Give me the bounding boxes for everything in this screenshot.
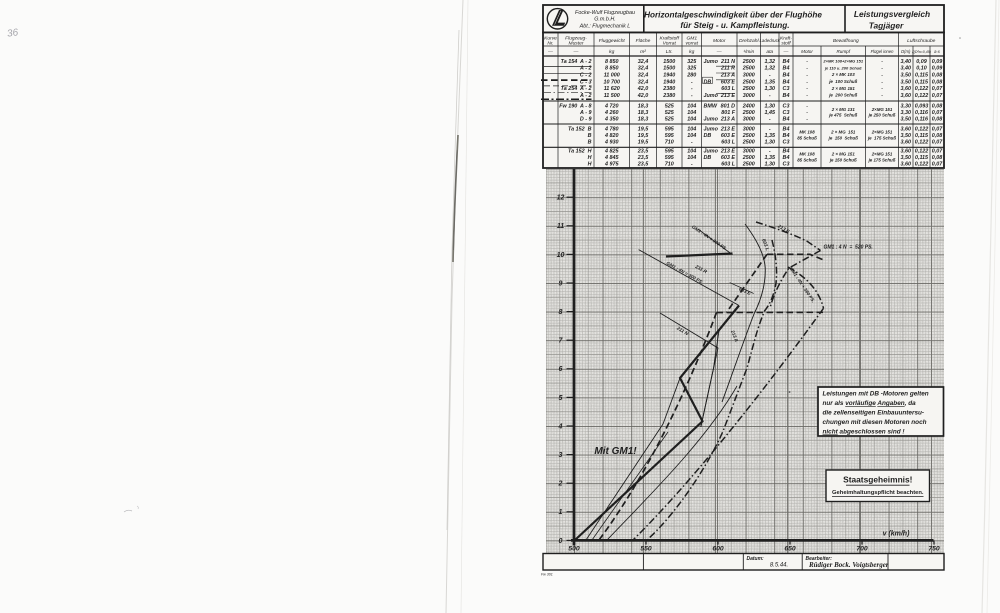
svg-text:3000: 3000 (743, 73, 755, 79)
svg-text:Kraftstoff: Kraftstoff (659, 36, 679, 42)
svg-text:1,35: 1,35 (765, 155, 776, 161)
svg-text:603 L: 603 L (721, 161, 735, 167)
svg-text:C3: C3 (783, 161, 790, 167)
svg-text:0,08: 0,08 (932, 79, 943, 85)
svg-text:-: - (881, 93, 883, 99)
svg-text:B4: B4 (783, 79, 790, 85)
svg-text:2500: 2500 (742, 133, 755, 139)
svg-text:die zellenseitigen Einbauunter: die zellenseitigen Einbauuntersu- (823, 410, 925, 417)
svg-text:je 110 u. 200 Schuß: je 110 u. 200 Schuß (824, 65, 862, 70)
svg-text:0,07: 0,07 (932, 148, 943, 154)
svg-text:32,4: 32,4 (638, 66, 649, 72)
svg-text:18,3: 18,3 (638, 103, 649, 109)
svg-text:2500: 2500 (742, 59, 755, 65)
svg-text:B: B (588, 139, 592, 145)
svg-text:85 Schuß: 85 Schuß (797, 135, 817, 140)
svg-text:0,08: 0,08 (932, 117, 943, 123)
svg-text:B4: B4 (783, 155, 790, 161)
svg-text:3,60: 3,60 (901, 93, 912, 99)
svg-text:801 D: 801 D (721, 103, 735, 109)
svg-text:-: - (806, 73, 808, 79)
svg-text:0,09: 0,09 (932, 66, 943, 72)
svg-text:-: - (691, 139, 693, 145)
svg-text:0,07: 0,07 (932, 86, 943, 92)
svg-text:B4: B4 (783, 73, 790, 79)
svg-text:19,5: 19,5 (638, 133, 649, 139)
svg-text:2380: 2380 (662, 93, 675, 99)
svg-text:280: 280 (686, 73, 696, 79)
svg-text:-: - (691, 79, 693, 85)
svg-text:104: 104 (687, 155, 696, 161)
svg-text:3,60: 3,60 (901, 86, 912, 92)
svg-text:ζ(D²a=0,45): ζ(D²a=0,45) (912, 50, 931, 54)
svg-text:-: - (881, 59, 883, 65)
svg-text:0,122: 0,122 (915, 161, 929, 167)
svg-text:GM1 : 4 N = 520 PS.: GM1 : 4 N = 520 PS. (824, 245, 873, 251)
svg-text:700: 700 (856, 546, 868, 553)
svg-text:4 825: 4 825 (604, 148, 619, 154)
svg-text:4 975: 4 975 (604, 161, 619, 167)
svg-text:1,32: 1,32 (765, 66, 776, 72)
svg-text:B: B (588, 133, 592, 139)
svg-text:-: - (769, 73, 771, 79)
svg-text:650: 650 (784, 546, 796, 553)
svg-text:-: - (806, 117, 808, 123)
svg-text:D - 9: D - 9 (580, 117, 592, 123)
svg-text:—: — (573, 50, 579, 55)
svg-text:500: 500 (568, 546, 580, 553)
svg-text:3,60: 3,60 (901, 139, 912, 145)
svg-text:Muster: Muster (569, 41, 584, 47)
svg-text:2380: 2380 (662, 86, 675, 92)
svg-text:0,08: 0,08 (932, 155, 943, 161)
svg-text:-: - (691, 161, 693, 167)
svg-text:je 175 Schuß: je 175 Schuß (867, 135, 896, 140)
svg-text:Fw 190 A - 8: Fw 190 A - 8 (559, 103, 591, 109)
svg-text:23,5: 23,5 (637, 148, 649, 154)
svg-text:6: 6 (559, 366, 563, 373)
svg-text:Ta 152 B: Ta 152 B (568, 126, 592, 132)
svg-text:Leistungen mit DB -Motoren gel: Leistungen mit DB -Motoren gelten (823, 391, 929, 398)
svg-text:je 175 Schuß: je 175 Schuß (868, 157, 896, 162)
svg-text:3,50: 3,50 (901, 133, 912, 139)
svg-text:2500: 2500 (742, 139, 755, 145)
svg-text:0,09: 0,09 (932, 59, 943, 65)
svg-text:je 150 Schuß: je 150 Schuß (828, 135, 859, 140)
svg-text:0,07: 0,07 (932, 110, 943, 116)
svg-text:2 × MG 151: 2 × MG 151 (830, 130, 856, 135)
svg-text:je 200 Schuß: je 200 Schuß (828, 93, 857, 98)
svg-text:H: H (588, 155, 592, 161)
svg-text:1940: 1940 (663, 73, 675, 79)
svg-text:550: 550 (640, 546, 652, 553)
svg-text:213 E: 213 E (720, 93, 735, 99)
svg-text:525: 525 (665, 110, 675, 116)
svg-text:12: 12 (557, 195, 565, 202)
svg-text:kg: kg (689, 49, 694, 55)
svg-text:nur als vorläufige Angaben, da: nur als vorläufige Angaben, da (823, 400, 917, 407)
svg-text:Ladedruck: Ladedruck (759, 38, 780, 43)
svg-text:1,35: 1,35 (765, 133, 776, 139)
svg-text:3,60: 3,60 (901, 161, 912, 167)
svg-text:3,60: 3,60 (901, 148, 912, 154)
svg-text:-: - (769, 117, 771, 123)
svg-text:Kraft-: Kraft- (780, 36, 792, 42)
svg-text:2500: 2500 (742, 79, 755, 85)
svg-text:1500: 1500 (663, 59, 675, 65)
svg-text:2500: 2500 (742, 66, 755, 72)
svg-text:Mit GM1!: Mit GM1! (594, 446, 637, 457)
svg-text:B4: B4 (783, 148, 790, 154)
svg-text:104: 104 (687, 103, 696, 109)
svg-text:11 000: 11 000 (604, 73, 620, 79)
svg-text:603 E: 603 E (721, 79, 735, 85)
svg-text:32,4: 32,4 (638, 73, 649, 79)
svg-text:213 A: 213 A (720, 73, 735, 79)
svg-text:MK 108: MK 108 (799, 152, 815, 157)
svg-text:a·x: a·x (934, 49, 941, 54)
svg-text:595: 595 (665, 148, 675, 154)
svg-text:2 × MG 131: 2 × MG 131 (831, 107, 856, 112)
svg-text:-: - (806, 103, 808, 109)
svg-text:Vorrat: Vorrat (663, 41, 677, 47)
svg-text:42,0: 42,0 (637, 86, 649, 92)
svg-text:2500: 2500 (742, 86, 755, 92)
svg-text:0,07: 0,07 (932, 93, 943, 99)
svg-text:Nr.: Nr. (547, 41, 553, 47)
svg-text:—: — (547, 50, 553, 55)
svg-text:710: 710 (665, 139, 674, 145)
svg-text:Kurve: Kurve (544, 36, 557, 42)
svg-text:ata: ata (766, 49, 773, 55)
svg-text:0,115: 0,115 (915, 79, 929, 85)
svg-text:0,122: 0,122 (915, 93, 929, 99)
svg-text:0,115: 0,115 (915, 155, 929, 161)
svg-text:-: - (691, 86, 693, 92)
svg-text:3,30: 3,30 (901, 110, 912, 116)
svg-text:Motor: Motor (713, 38, 726, 44)
svg-text:Fw 301: Fw 301 (541, 573, 553, 577)
svg-text:2 × MK 103: 2 × MK 103 (831, 72, 855, 77)
svg-text:G.m.b.H.: G.m.b.H. (594, 17, 616, 23)
svg-text:0,122: 0,122 (915, 148, 929, 154)
svg-text:8.5.44.: 8.5.44. (770, 563, 788, 569)
svg-text:213 E: 213 E (720, 126, 735, 132)
svg-text:Drehzahl: Drehzahl (739, 38, 759, 44)
svg-text:Jumo: Jumo (704, 59, 719, 65)
svg-text:8 850: 8 850 (605, 59, 619, 65)
svg-text:kg: kg (609, 49, 614, 55)
svg-text:1,45: 1,45 (765, 110, 776, 116)
svg-text:104: 104 (687, 110, 696, 116)
svg-text:3,40: 3,40 (901, 59, 912, 65)
svg-text:710: 710 (665, 161, 674, 167)
svg-text:DB: DB (704, 133, 712, 139)
svg-text:0,116: 0,116 (915, 117, 929, 123)
svg-text:3,30: 3,30 (901, 103, 912, 109)
svg-text:Ta 152 H: Ta 152 H (568, 148, 592, 154)
svg-text:211 R: 211 R (720, 66, 735, 72)
svg-text:85 Schuß: 85 Schuß (797, 157, 817, 162)
svg-text:213 E: 213 E (720, 148, 735, 154)
svg-text:32,4: 32,4 (638, 79, 649, 85)
svg-text:11: 11 (557, 223, 564, 230)
svg-text:2500: 2500 (742, 110, 755, 116)
svg-text:42,0: 42,0 (637, 93, 649, 99)
svg-text:Jumo: Jumo (704, 93, 719, 99)
svg-text:-: - (881, 86, 883, 92)
svg-text:nicht abgeschlossen sind !: nicht abgeschlossen sind ! (823, 429, 906, 436)
svg-text:0: 0 (559, 538, 563, 545)
svg-text:3000: 3000 (743, 117, 755, 123)
svg-text:1500: 1500 (663, 66, 675, 72)
svg-text:2500: 2500 (742, 155, 755, 161)
svg-text:2400: 2400 (742, 103, 755, 109)
svg-text:2: 2 (558, 481, 563, 488)
svg-text:2500: 2500 (742, 161, 755, 167)
svg-text:600: 600 (712, 546, 724, 553)
svg-text:0,115: 0,115 (915, 133, 929, 139)
svg-text:4 820: 4 820 (604, 133, 619, 139)
svg-text:je 100 Schuß: je 100 Schuß (828, 79, 857, 84)
svg-text:C3: C3 (783, 86, 790, 92)
svg-text:DB: DB (704, 155, 712, 161)
svg-text:8 850: 8 850 (605, 66, 619, 72)
svg-text:Motor: Motor (801, 49, 813, 54)
svg-text:603 L: 603 L (721, 86, 735, 92)
svg-text:3000: 3000 (743, 93, 755, 99)
svg-text:Leistungsvergleich: Leistungsvergleich (854, 9, 930, 19)
svg-text:603 E: 603 E (721, 155, 735, 161)
svg-text:603 E: 603 E (721, 133, 735, 139)
svg-text:A - 2: A - 2 (579, 93, 591, 99)
svg-text:A - 9: A - 9 (579, 110, 591, 116)
svg-text:Focke-Wulf Flugzeugbau: Focke-Wulf Flugzeugbau (575, 10, 635, 16)
svg-text:B4: B4 (783, 126, 790, 132)
svg-text:Flügel innen: Flügel innen (871, 49, 894, 54)
svg-text:9: 9 (559, 280, 563, 287)
svg-text:BMW: BMW (704, 103, 718, 109)
svg-text:-: - (881, 79, 883, 85)
svg-text:1,30: 1,30 (765, 139, 776, 145)
svg-text:Jumo: Jumo (704, 126, 719, 132)
svg-text:4 845: 4 845 (604, 155, 619, 161)
svg-text:DB: DB (704, 79, 712, 85)
svg-text:11 500: 11 500 (604, 93, 620, 99)
svg-text:1,35: 1,35 (765, 79, 776, 85)
svg-text:-: - (769, 93, 771, 99)
svg-text:B4: B4 (783, 66, 790, 72)
svg-text:2 × MG 151: 2 × MG 151 (831, 86, 856, 91)
svg-text:0,07: 0,07 (932, 139, 943, 145)
svg-text:B4: B4 (783, 133, 790, 139)
svg-text:603 L: 603 L (721, 139, 735, 145)
svg-text:18,3: 18,3 (638, 110, 649, 116)
svg-text:0,122: 0,122 (915, 126, 929, 132)
svg-text:Bewaffnung: Bewaffnung (833, 38, 859, 44)
svg-text:Geheimhaltungspflicht beachten: Geheimhaltungspflicht beachten. (832, 490, 924, 496)
svg-text:36: 36 (6, 27, 19, 40)
svg-text:4 350: 4 350 (604, 117, 619, 123)
svg-text:je 150 Schuß: je 150 Schuß (829, 157, 857, 162)
svg-text:19,5: 19,5 (638, 126, 649, 132)
svg-text:4 720: 4 720 (604, 103, 619, 109)
svg-text:Datum:: Datum: (747, 556, 765, 562)
svg-text:325: 325 (687, 66, 697, 72)
svg-text:-: - (806, 79, 808, 85)
svg-text:Rüdiger Bock. Voigtsberger: Rüdiger Bock. Voigtsberger (808, 561, 889, 569)
svg-text:0,08: 0,08 (932, 73, 943, 79)
svg-text:23,5: 23,5 (637, 161, 649, 167)
svg-text:-: - (806, 93, 808, 99)
svg-text:Fläche: Fläche (636, 38, 651, 44)
svg-text:104: 104 (687, 117, 696, 123)
svg-text:—: — (783, 50, 789, 55)
svg-text:595: 595 (665, 126, 675, 132)
svg-text:B4: B4 (783, 117, 790, 123)
svg-text:104: 104 (687, 126, 696, 132)
svg-text:0,07: 0,07 (932, 126, 943, 132)
svg-text:3,50: 3,50 (901, 79, 912, 85)
svg-text:3: 3 (559, 452, 563, 459)
svg-text:0,116: 0,116 (915, 110, 929, 116)
svg-text:Tagjäger: Tagjäger (869, 21, 904, 31)
svg-text:525: 525 (665, 117, 675, 123)
svg-text:595: 595 (665, 133, 675, 139)
svg-text:5: 5 (559, 395, 563, 402)
svg-text:Fluggewicht: Fluggewicht (599, 38, 626, 44)
svg-text:MK 108: MK 108 (799, 130, 815, 135)
svg-text:-: - (769, 148, 771, 154)
svg-text:1,30: 1,30 (765, 103, 776, 109)
svg-text:0,08: 0,08 (932, 103, 943, 109)
svg-text:-: - (881, 73, 883, 79)
svg-text:2×MG 151: 2×MG 151 (871, 107, 893, 112)
svg-text:¹/min: ¹/min (743, 49, 754, 55)
svg-text:0,09: 0,09 (916, 59, 927, 65)
svg-text:3,40: 3,40 (901, 66, 912, 72)
svg-text:H: H (588, 161, 592, 167)
svg-text:0,122: 0,122 (915, 86, 929, 92)
svg-text:B4: B4 (783, 93, 790, 99)
svg-text:-: - (806, 110, 808, 116)
svg-text:4: 4 (558, 423, 563, 430)
svg-text:für Steig - u. Kampfleistung.: für Steig - u. Kampfleistung. (680, 21, 789, 30)
svg-text:-: - (806, 86, 808, 92)
svg-text:v (km/h): v (km/h) (883, 531, 911, 538)
svg-text:3000: 3000 (743, 148, 755, 154)
svg-text:32,4: 32,4 (638, 59, 649, 65)
svg-text:325: 325 (687, 59, 697, 65)
svg-text:C3: C3 (783, 103, 790, 109)
svg-text:104: 104 (687, 148, 696, 154)
svg-text:3,50: 3,50 (901, 73, 912, 79)
svg-text:1,30: 1,30 (765, 161, 776, 167)
svg-text:1,30: 1,30 (765, 86, 776, 92)
svg-text:1940: 1940 (663, 79, 675, 85)
svg-text:4 260: 4 260 (604, 110, 619, 116)
svg-text:Ta 154 A - 2: Ta 154 A - 2 (561, 59, 592, 65)
svg-text:Staatsgeheimnis!: Staatsgeheimnis! (843, 475, 912, 485)
svg-text:C3: C3 (783, 139, 790, 145)
svg-text:213 A: 213 A (720, 117, 735, 123)
svg-text:2×MG 151: 2×MG 151 (871, 130, 893, 135)
svg-text:0,10: 0,10 (916, 66, 927, 72)
svg-text:Jumo: Jumo (704, 148, 719, 154)
svg-text:19,5: 19,5 (638, 139, 649, 145)
svg-text:je 475 Schuß: je 475 Schuß (828, 113, 857, 118)
svg-text:B4: B4 (783, 59, 790, 65)
svg-text:3,60: 3,60 (901, 126, 912, 132)
svg-text:2×MG 151: 2×MG 151 (871, 152, 893, 157)
svg-text:Jumo: Jumo (704, 117, 719, 123)
svg-text:Flugzeug-: Flugzeug- (565, 36, 587, 42)
svg-text:m²: m² (640, 49, 646, 55)
svg-text:Ltr.: Ltr. (666, 49, 673, 55)
svg-text:4 930: 4 930 (604, 139, 619, 145)
svg-text:vorrat: vorrat (685, 41, 698, 47)
svg-text:750: 750 (928, 546, 940, 553)
svg-text:211 N: 211 N (720, 59, 735, 65)
svg-text:je 250 Schuß: je 250 Schuß (868, 113, 896, 118)
svg-text:Rumpf: Rumpf (836, 49, 850, 54)
svg-text:Abt.: Flugmechanik L: Abt.: Flugmechanik L (579, 24, 631, 30)
svg-text:0,122: 0,122 (915, 139, 929, 145)
svg-text:1: 1 (559, 509, 563, 516)
svg-text:10 700: 10 700 (604, 79, 621, 85)
svg-text:2 × MG 151: 2 × MG 151 (831, 152, 856, 157)
svg-text:2×MK 108+2×MG 151: 2×MK 108+2×MG 151 (822, 59, 863, 64)
svg-text:stoff: stoff (781, 41, 791, 47)
svg-text:GM1: GM1 (686, 36, 697, 42)
svg-text:525: 525 (665, 103, 675, 109)
svg-text:0,07: 0,07 (932, 161, 943, 167)
svg-text:C3: C3 (783, 110, 790, 116)
svg-text:—: — (716, 50, 722, 55)
svg-text:Luftschraube: Luftschraube (907, 38, 936, 44)
svg-text:D(m): D(m) (901, 49, 911, 54)
svg-text:11 620: 11 620 (604, 86, 620, 92)
svg-text:chungen mit diesen Motoren noc: chungen mit diesen Motoren noch (823, 419, 927, 426)
svg-text:0,115: 0,115 (915, 73, 929, 79)
svg-text:10: 10 (557, 252, 565, 259)
svg-text:23,5: 23,5 (637, 155, 649, 161)
svg-text:-: - (691, 93, 693, 99)
svg-text:801 F: 801 F (721, 110, 735, 116)
svg-text:-: - (806, 66, 808, 72)
svg-text:1,32: 1,32 (765, 59, 776, 65)
svg-text:-: - (806, 59, 808, 65)
svg-text:3,50: 3,50 (901, 155, 912, 161)
svg-text:18,3: 18,3 (638, 117, 649, 123)
svg-text:3,50: 3,50 (901, 117, 912, 123)
svg-text:3000: 3000 (743, 126, 755, 132)
svg-text:8: 8 (559, 309, 563, 316)
svg-text:Ta 254 A - 2: Ta 254 A - 2 (561, 86, 592, 92)
svg-text:4 780: 4 780 (604, 126, 619, 132)
svg-text:-: - (769, 126, 771, 132)
svg-text:595: 595 (665, 155, 675, 161)
svg-text:104: 104 (687, 133, 696, 139)
svg-text:Horizontalgeschwindigkeit über: Horizontalgeschwindigkeit über der Flugh… (644, 11, 822, 20)
svg-text:0,08: 0,08 (932, 133, 943, 139)
svg-text:-: - (881, 66, 883, 72)
